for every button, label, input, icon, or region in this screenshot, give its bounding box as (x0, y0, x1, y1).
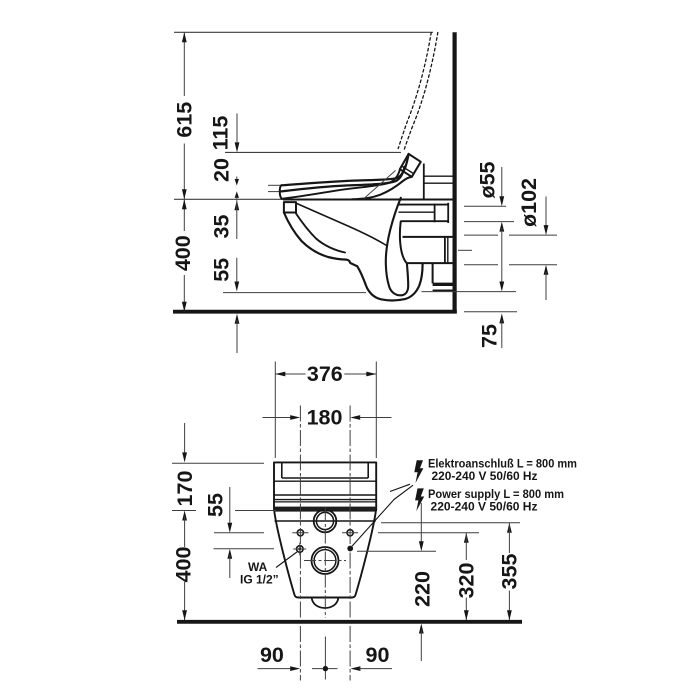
svg-text:55: 55 (210, 258, 234, 282)
svg-text:220: 220 (411, 571, 435, 607)
svg-text:ø102: ø102 (517, 178, 541, 227)
svg-text:90: 90 (366, 643, 390, 667)
svg-text:355: 355 (497, 554, 521, 590)
svg-text:115: 115 (209, 116, 233, 151)
svg-text:400: 400 (171, 235, 195, 271)
svg-text:220-240 V 50/60 Hz: 220-240 V 50/60 Hz (432, 469, 538, 483)
svg-text:170: 170 (173, 471, 197, 507)
svg-text:400: 400 (171, 547, 195, 583)
svg-text:IG 1/2”: IG 1/2” (240, 573, 279, 587)
svg-text:615: 615 (172, 102, 196, 138)
svg-text:75: 75 (478, 324, 502, 348)
svg-text:ø55: ø55 (476, 161, 500, 198)
svg-text:180: 180 (307, 405, 343, 429)
svg-text:35: 35 (210, 215, 234, 239)
svg-text:90: 90 (260, 643, 284, 667)
svg-text:376: 376 (307, 362, 343, 386)
svg-text:320: 320 (454, 563, 478, 599)
svg-text:220-240 V 50/60 Hz: 220-240 V 50/60 Hz (431, 499, 538, 513)
svg-text:55: 55 (204, 493, 228, 517)
svg-text:20: 20 (210, 158, 234, 182)
